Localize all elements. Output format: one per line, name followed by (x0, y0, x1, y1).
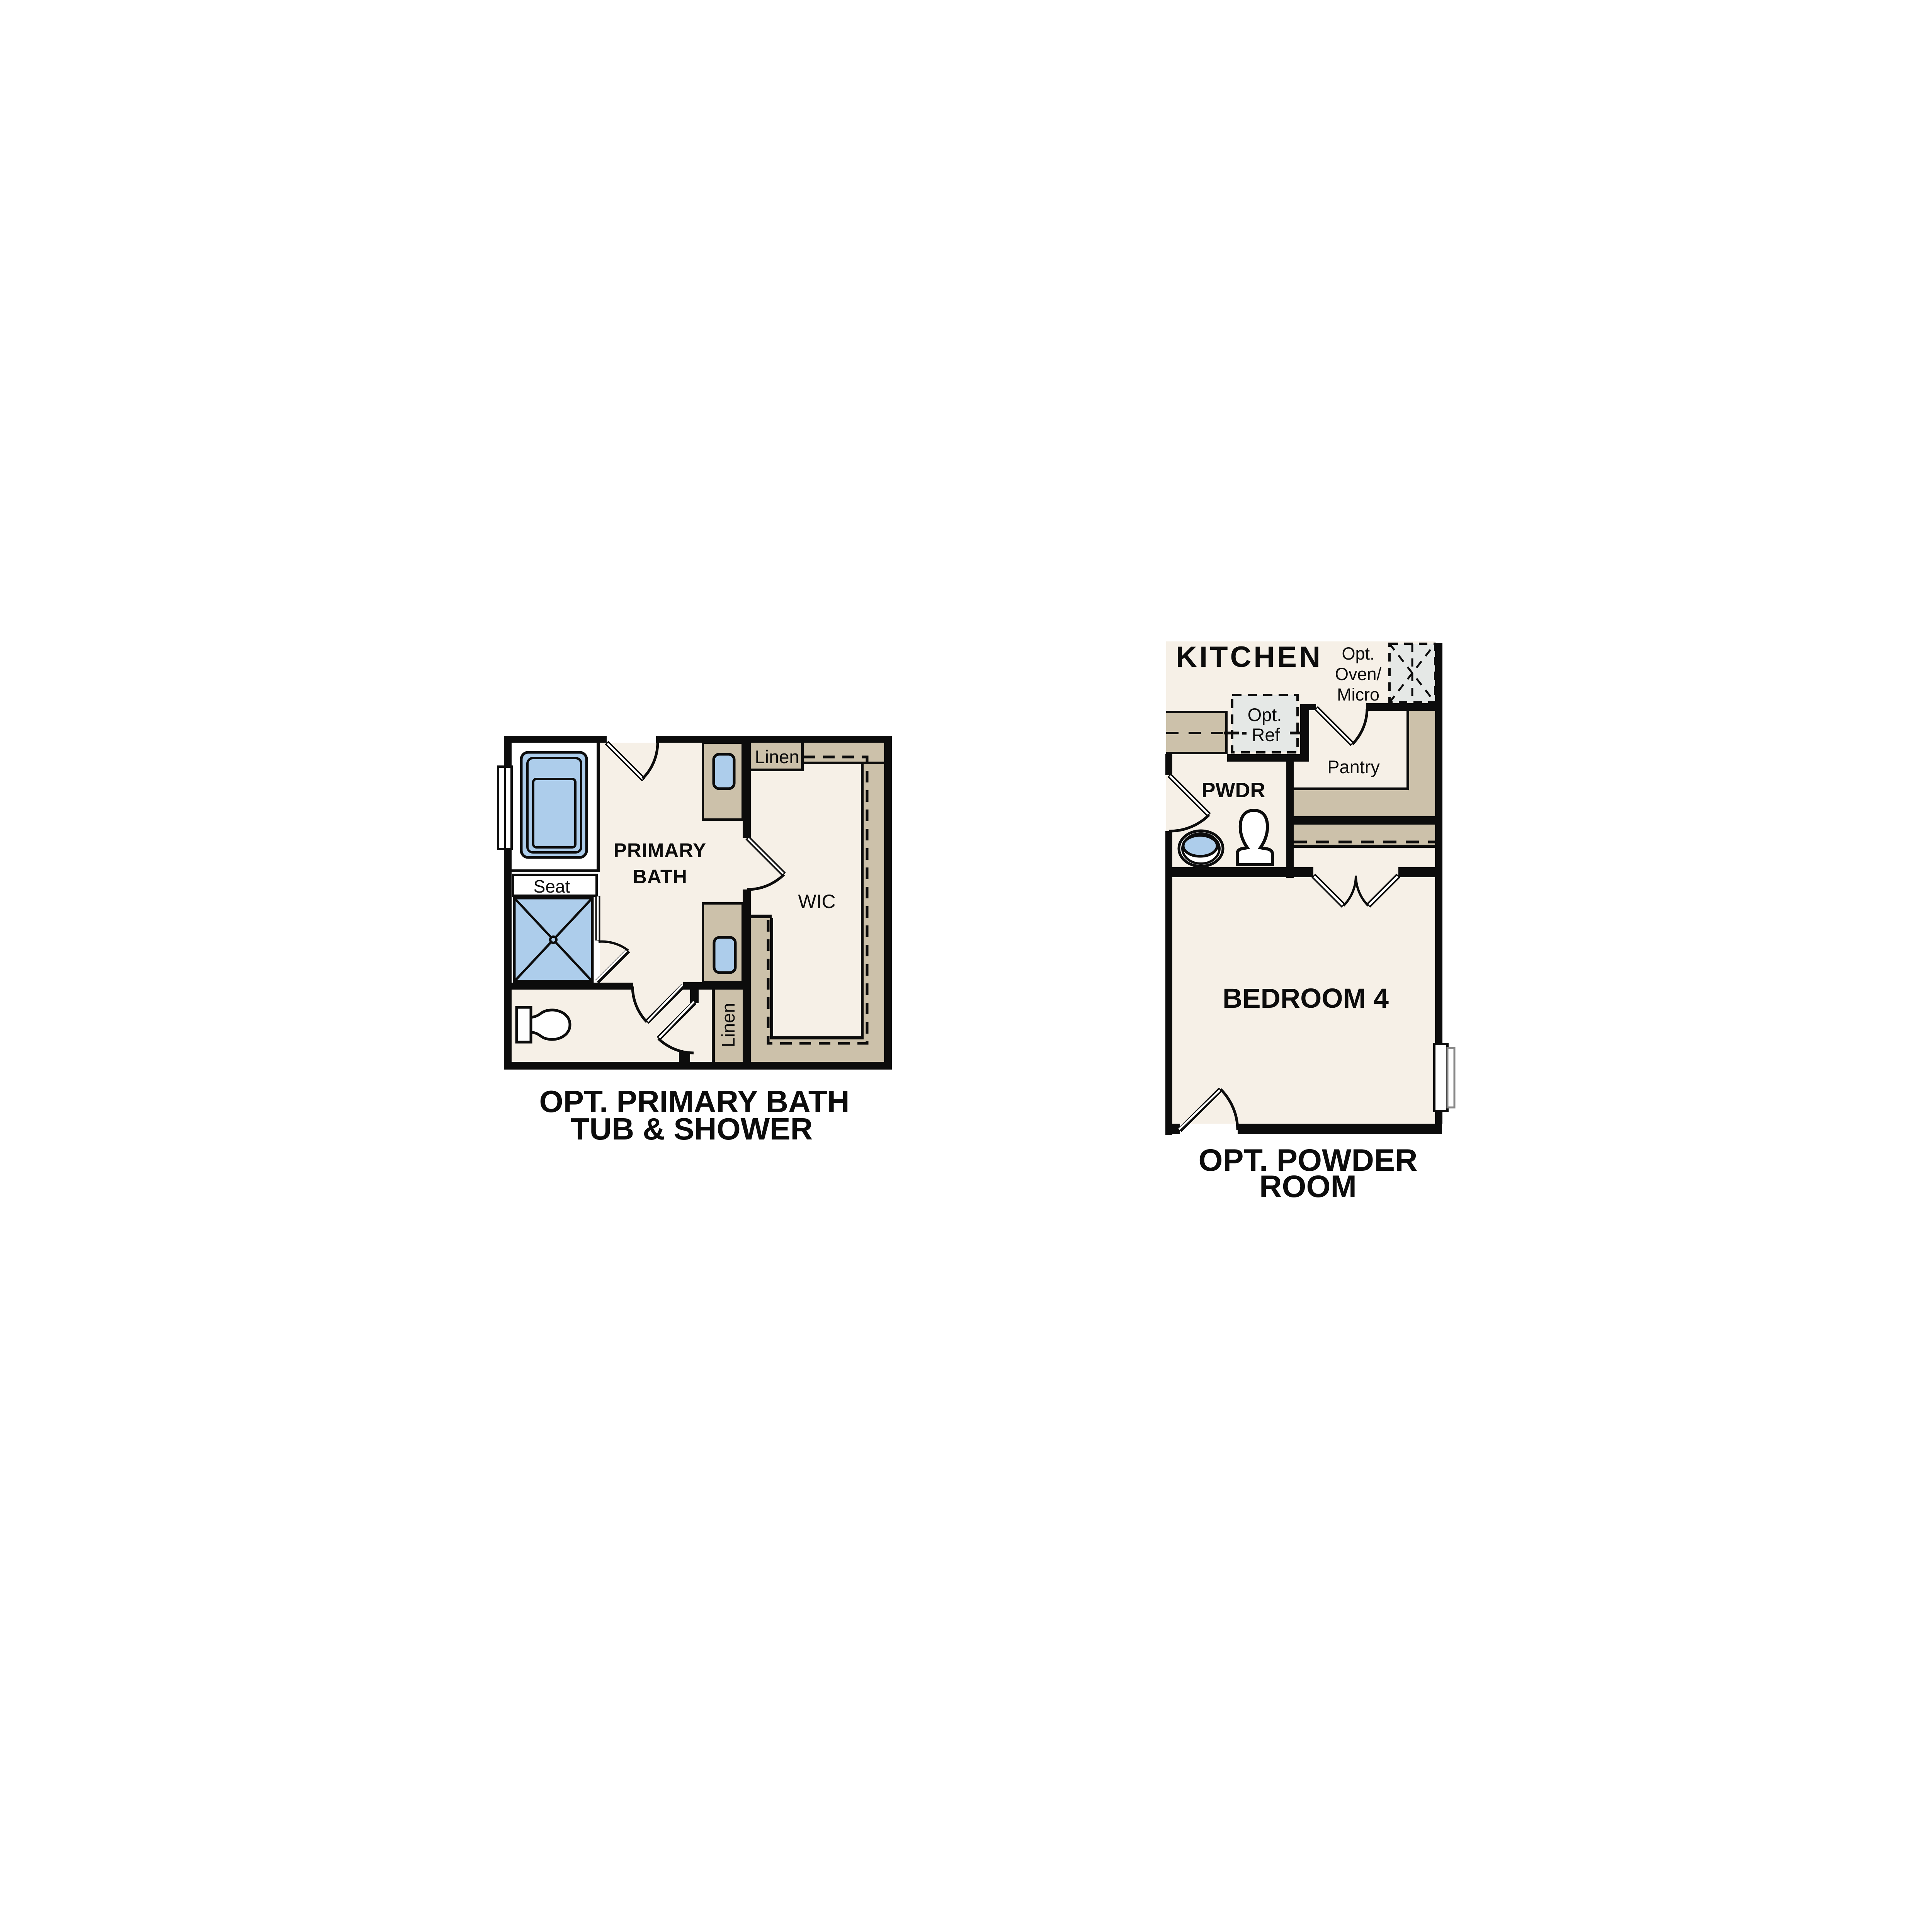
svg-text:Pantry: Pantry (1327, 757, 1380, 777)
svg-text:PWDR: PWDR (1202, 779, 1265, 802)
svg-text:Opt.: Opt. (1248, 704, 1282, 725)
svg-text:BATH: BATH (633, 866, 687, 888)
svg-text:ROOM: ROOM (1259, 1169, 1357, 1204)
svg-text:KITCHEN: KITCHEN (1176, 641, 1323, 673)
svg-text:WIC: WIC (798, 891, 835, 912)
svg-text:TUB & SHOWER: TUB & SHOWER (571, 1112, 813, 1146)
svg-text:Opt.: Opt. (1342, 644, 1374, 663)
svg-text:BEDROOM 4: BEDROOM 4 (1223, 983, 1389, 1014)
svg-text:Ref: Ref (1252, 724, 1280, 745)
svg-text:Oven/: Oven/ (1335, 664, 1382, 684)
svg-text:Linen: Linen (718, 1003, 738, 1048)
svg-text:Micro: Micro (1337, 685, 1379, 704)
svg-text:Linen: Linen (755, 747, 799, 767)
svg-text:Seat: Seat (534, 876, 570, 896)
svg-text:PRIMARY: PRIMARY (614, 839, 706, 861)
